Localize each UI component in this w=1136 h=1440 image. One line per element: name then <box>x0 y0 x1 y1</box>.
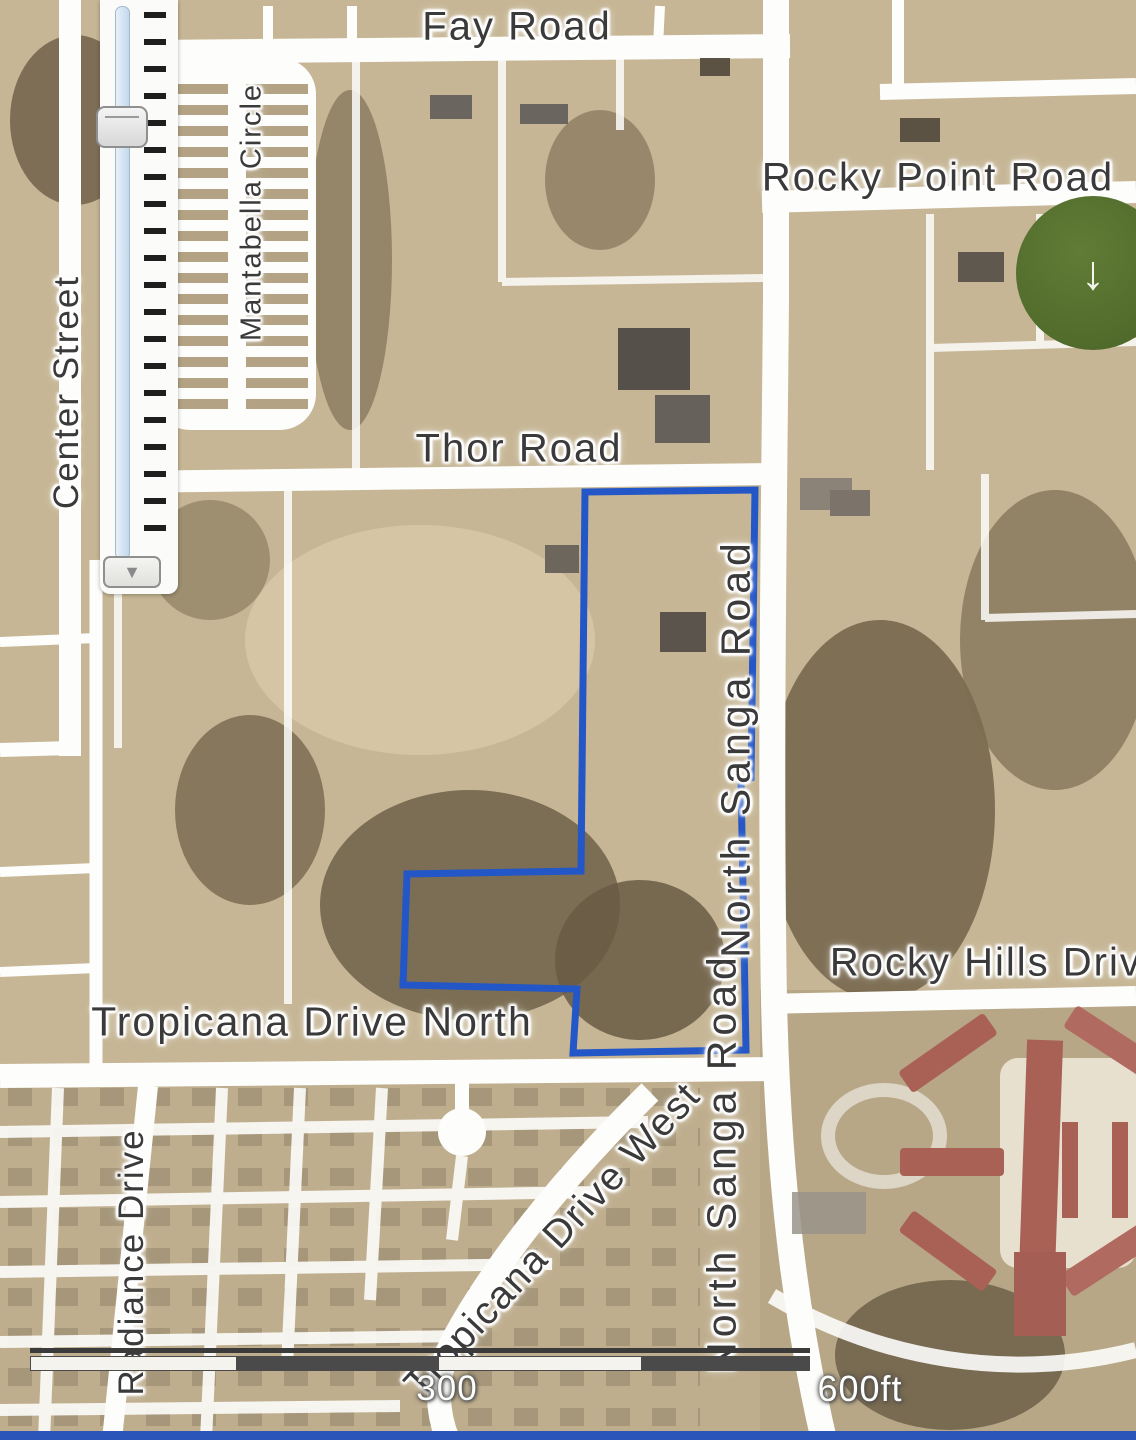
road-label-rocky-hills-drive: Rocky Hills Drive <box>830 941 1136 986</box>
scale-segment <box>236 1357 439 1370</box>
road-label-center-street: Center Street <box>47 275 87 509</box>
down-arrow-icon: ↓ <box>1081 246 1105 301</box>
zoom-slider-ticks <box>144 12 166 552</box>
scale-segment <box>31 1357 236 1370</box>
zoom-slider-handle[interactable] <box>96 106 148 148</box>
scale-end-label: 600ft <box>817 1368 902 1410</box>
road-label-mantabella-circle: Mantabella Circle <box>236 83 269 341</box>
road-label-thor-road: Thor Road <box>416 427 623 472</box>
road-label-tropicana-drive-north: Tropicana Drive North <box>91 999 533 1046</box>
scale-mid-label: 300 <box>416 1369 477 1409</box>
scale-segment <box>641 1357 809 1370</box>
down-triangle-icon: ▼ <box>123 563 141 581</box>
scale-bar-line <box>30 1348 810 1353</box>
bottom-bar <box>0 1431 1136 1440</box>
road-label-north-sanga-road-lower: North Sanga Road <box>699 952 746 1372</box>
zoom-slider-handle-grip <box>105 116 139 118</box>
zoom-out-button[interactable]: ▼ <box>103 556 161 588</box>
road-label-fay-road: Fay Road <box>422 5 611 50</box>
map-canvas[interactable]: Fay Road Rocky Point Road Mantabella Cir… <box>0 0 1136 1440</box>
zoom-slider-track[interactable] <box>115 6 130 560</box>
road-label-rocky-point-road: Rocky Point Road <box>762 156 1114 201</box>
road-label-north-sanga-road-upper: North Sanga Road <box>713 538 760 958</box>
zoom-slider[interactable]: ▼ <box>100 0 178 594</box>
